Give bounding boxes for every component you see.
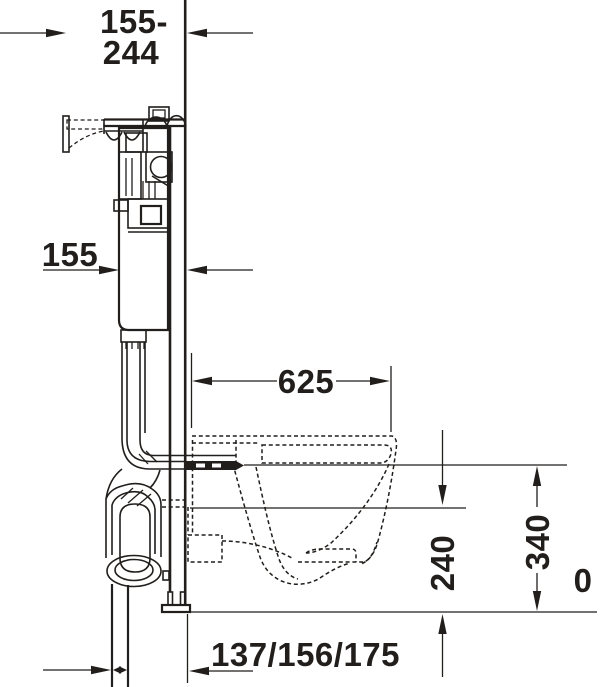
drain-elbow [106, 469, 161, 587]
installation-diagram: 155- 244 155 625 240 340 0 [0, 0, 600, 687]
dim-340: 340 [519, 514, 556, 571]
diagram-canvas: 155- 244 155 625 240 340 0 [0, 0, 600, 687]
dimension-top-range: 155- 244 [0, 3, 253, 71]
frame-rail [104, 0, 186, 605]
dim-top-line2: 244 [103, 34, 160, 71]
dim-625: 625 [278, 363, 335, 400]
dimension-bottom-offsets: 137/156/175 [43, 614, 400, 683]
floor-reference: 0 [574, 562, 593, 599]
dim-240: 240 [424, 535, 461, 592]
flush-pipe [122, 342, 244, 470]
dimension-height-340: 340 [519, 466, 556, 611]
dim-zero: 0 [574, 562, 593, 599]
dimension-height-240: 240 [424, 430, 461, 677]
dimension-left-depth: 155 [42, 236, 253, 274]
dim-offsets: 137/156/175 [211, 636, 400, 673]
toilet-bowl-outline [162, 436, 397, 584]
dim-155: 155 [42, 236, 99, 273]
dimension-projection: 625 [192, 353, 392, 432]
